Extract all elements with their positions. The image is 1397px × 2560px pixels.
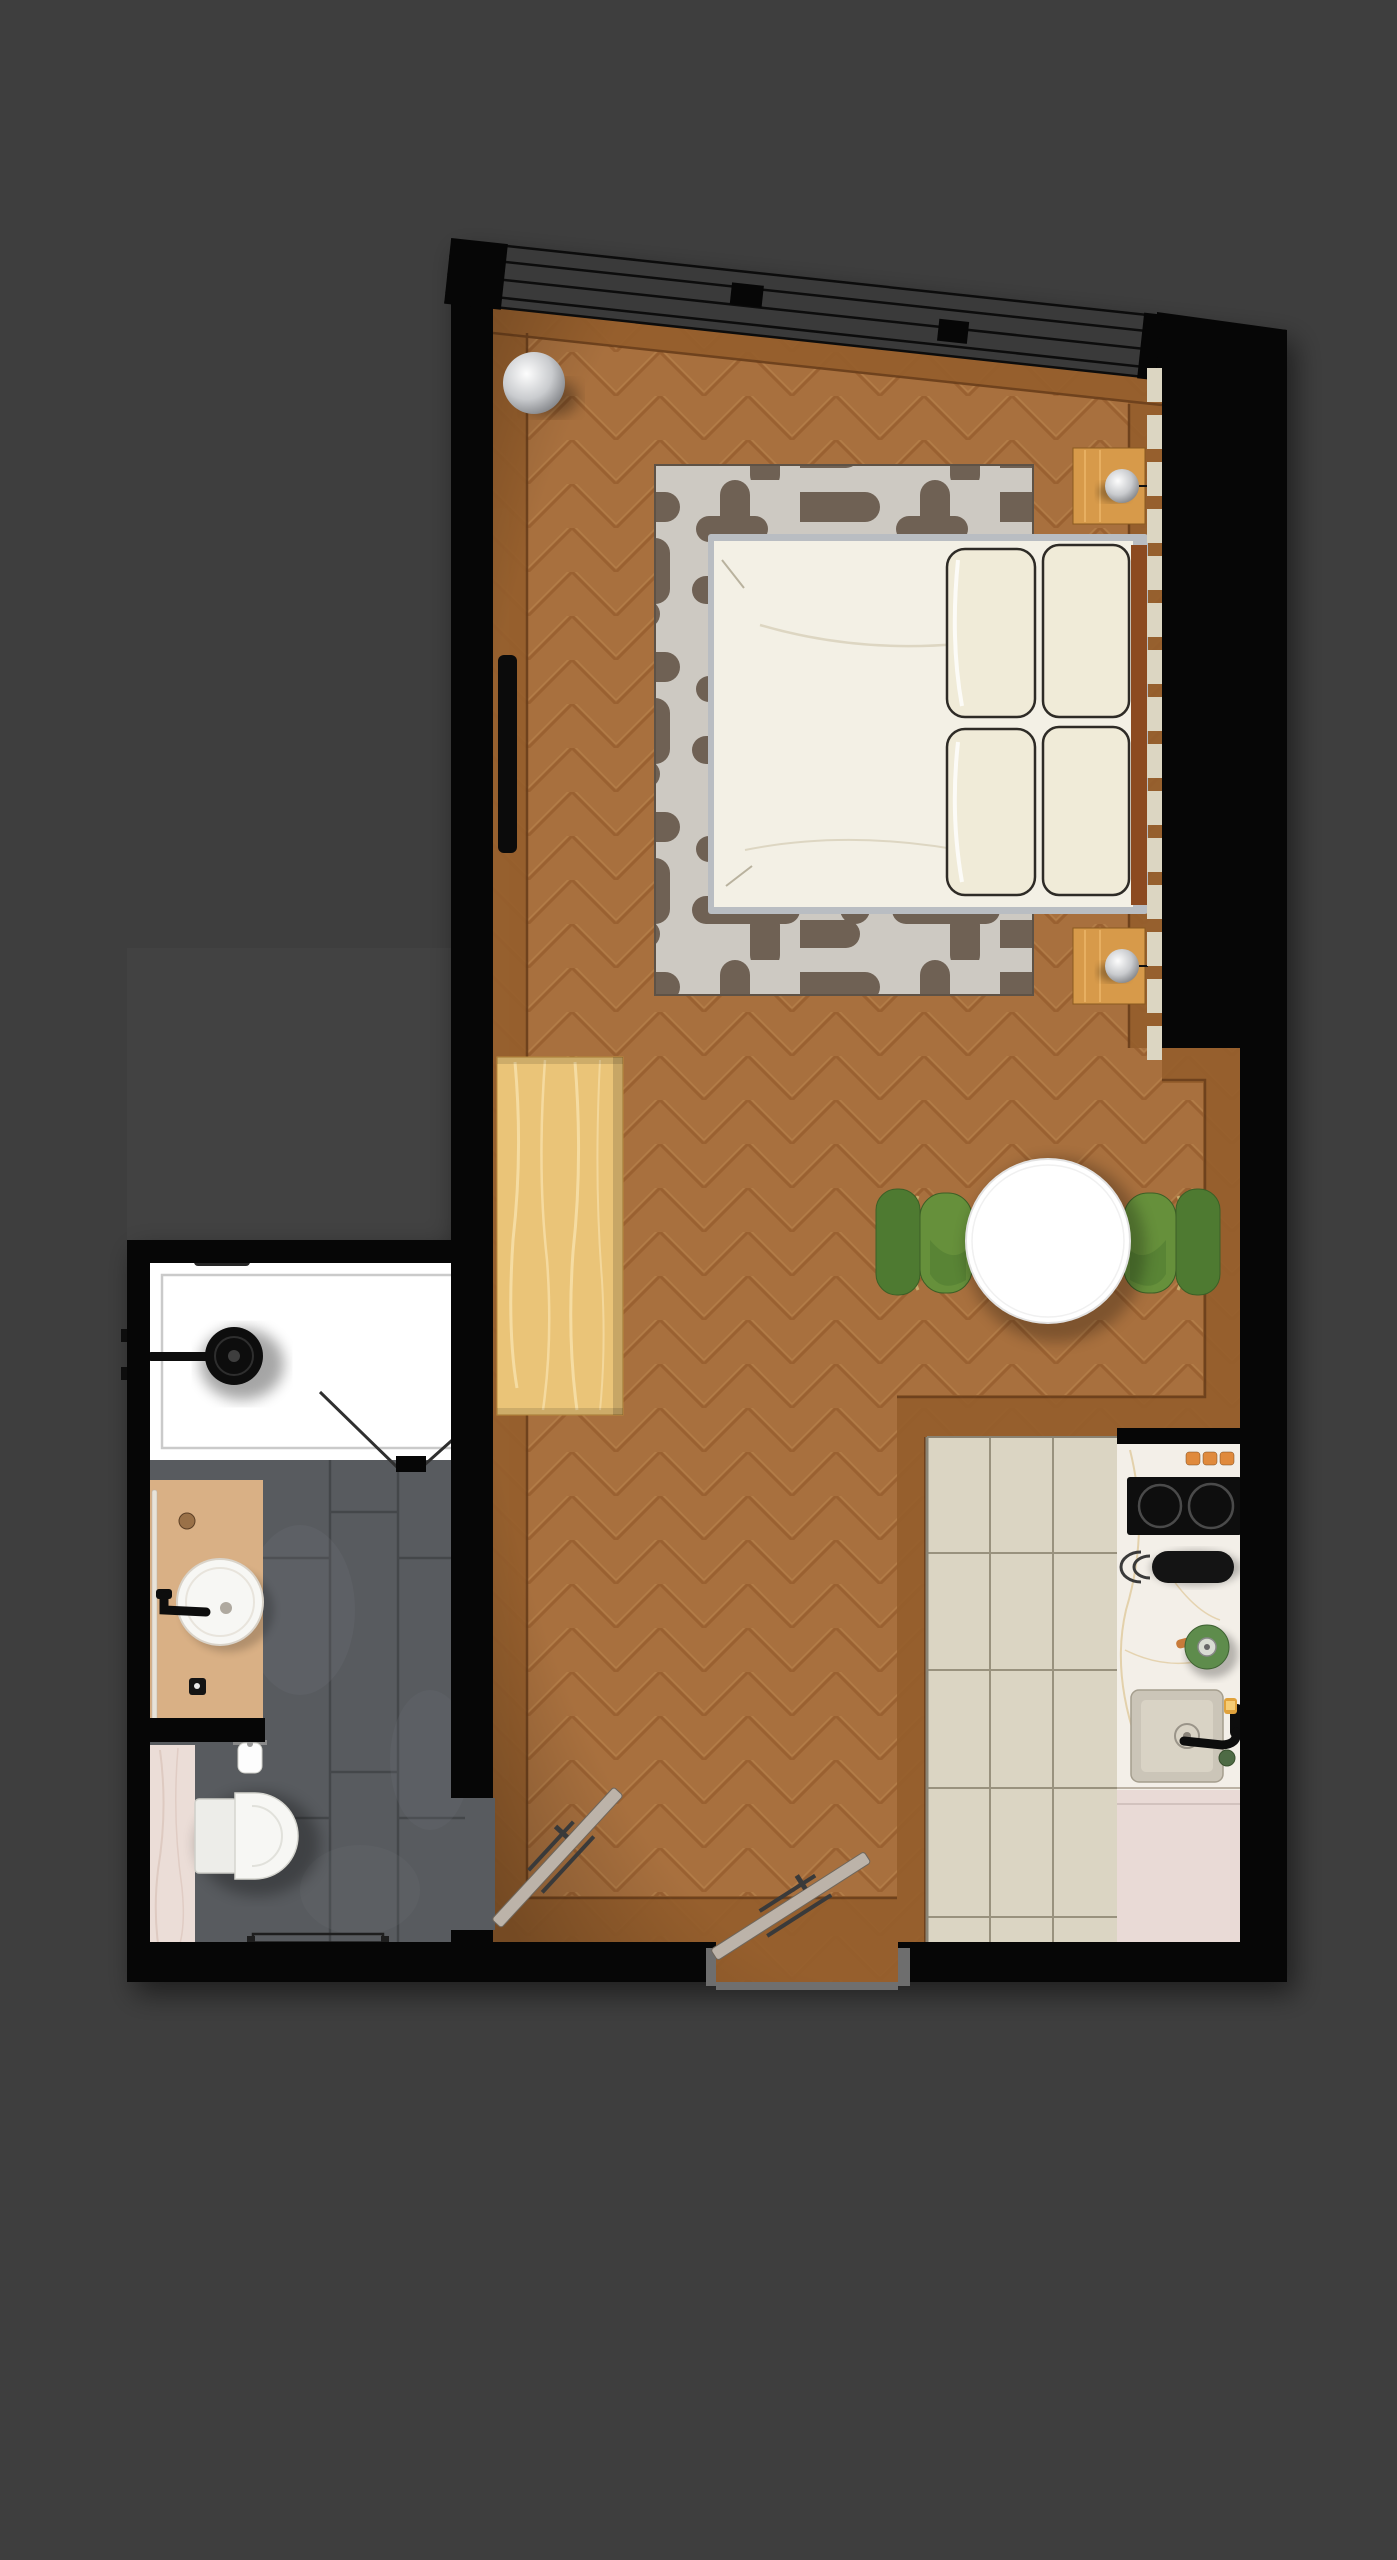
entry-jamb-right: [898, 1948, 910, 1986]
vanity: [150, 1480, 274, 1732]
nightstand-lower: [1073, 928, 1148, 1004]
toilet-paper-icon: [233, 1740, 267, 1773]
tv-panel: [498, 655, 517, 853]
wall-vanity-divider: [127, 1718, 265, 1742]
toilet-icon: [195, 1793, 298, 1879]
marble-panel: [148, 1745, 195, 1953]
window-cap-left: [444, 238, 508, 310]
hob-icon: [1127, 1477, 1242, 1535]
wall-counter-top-edge: [1117, 1428, 1242, 1444]
table-lamp-lower-icon: [1105, 949, 1139, 983]
wall-bathroom-top: [127, 1240, 493, 1263]
basin-drain: [220, 1602, 232, 1614]
wall-bathroom-left: [127, 1240, 150, 1982]
window-mullion-1: [730, 282, 764, 307]
wall-left: [451, 244, 493, 1798]
wall-radiator: [1147, 368, 1162, 1073]
hob-knobs: [1186, 1452, 1234, 1465]
floorplan-canvas: [0, 0, 1397, 2560]
plant-pot-icon: [1219, 1750, 1235, 1766]
kitchen-worktop: [1117, 1444, 1243, 1942]
dining-table: [966, 1159, 1130, 1323]
wall-bottom-right: [898, 1942, 1287, 1982]
entry-threshold: [716, 1982, 898, 1990]
lower-worktop: [1117, 1790, 1242, 1942]
shower-tray: [150, 1263, 465, 1460]
window-mullion-2: [937, 319, 969, 344]
nightstand-upper: [1073, 448, 1148, 524]
basin: [177, 1559, 263, 1645]
table-lamp-upper-icon: [1105, 469, 1139, 503]
wall-bottom-left: [127, 1942, 716, 1982]
soap-pump-icon: [179, 1513, 195, 1529]
double-bed: [708, 534, 1148, 914]
background-pocket-shade: [127, 948, 451, 1240]
dining-chair-left: [876, 1189, 972, 1295]
shower: [121, 1246, 470, 1472]
headboard: [1131, 545, 1147, 905]
wardrobe: [497, 1057, 623, 1415]
vanity-rail: [152, 1490, 157, 1722]
